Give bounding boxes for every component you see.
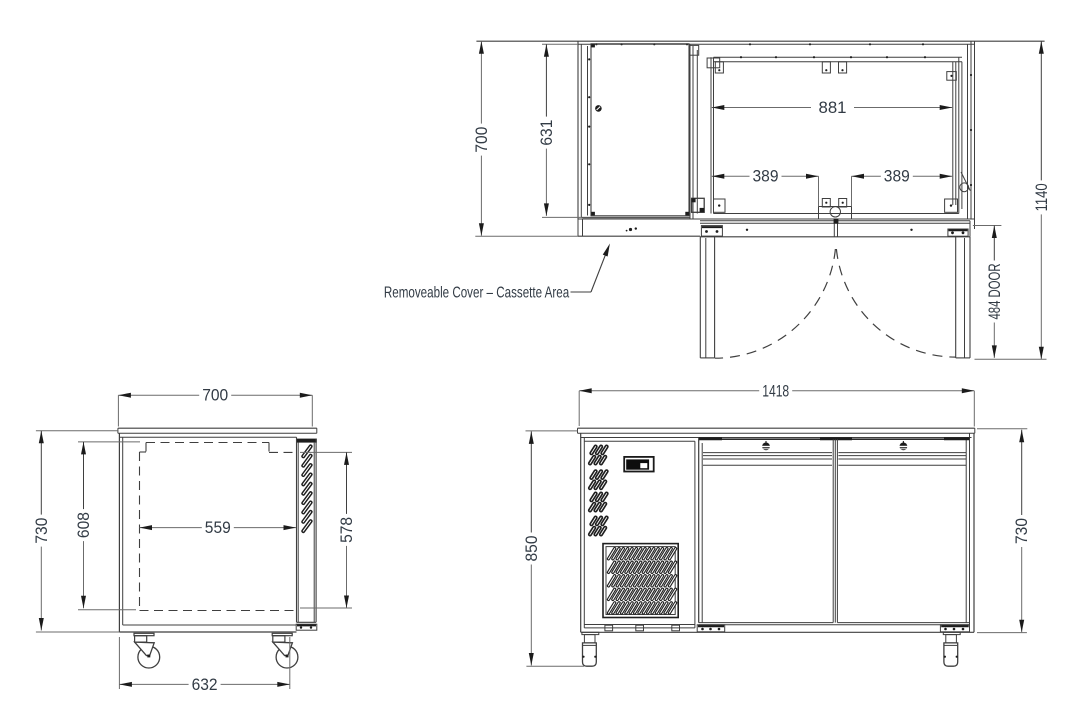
svg-text:578: 578 bbox=[337, 517, 356, 543]
svg-text:1140: 1140 bbox=[1032, 183, 1051, 211]
svg-text:389: 389 bbox=[753, 167, 779, 186]
svg-text:700: 700 bbox=[202, 386, 228, 405]
svg-text:Removeable Cover – Cassette Ar: Removeable Cover – Cassette Area bbox=[384, 285, 569, 302]
svg-text:631: 631 bbox=[537, 120, 556, 146]
svg-text:730: 730 bbox=[32, 518, 51, 544]
svg-text:881: 881 bbox=[819, 98, 847, 117]
svg-text:700: 700 bbox=[472, 127, 491, 153]
svg-text:1418: 1418 bbox=[762, 381, 789, 400]
svg-text:389: 389 bbox=[884, 167, 910, 186]
svg-text:559: 559 bbox=[205, 518, 231, 537]
svg-text:632: 632 bbox=[192, 675, 218, 694]
svg-text:730: 730 bbox=[1012, 518, 1031, 544]
svg-text:484 DOOR: 484 DOOR bbox=[985, 264, 1004, 320]
svg-text:850: 850 bbox=[522, 536, 541, 562]
svg-text:608: 608 bbox=[74, 512, 93, 538]
